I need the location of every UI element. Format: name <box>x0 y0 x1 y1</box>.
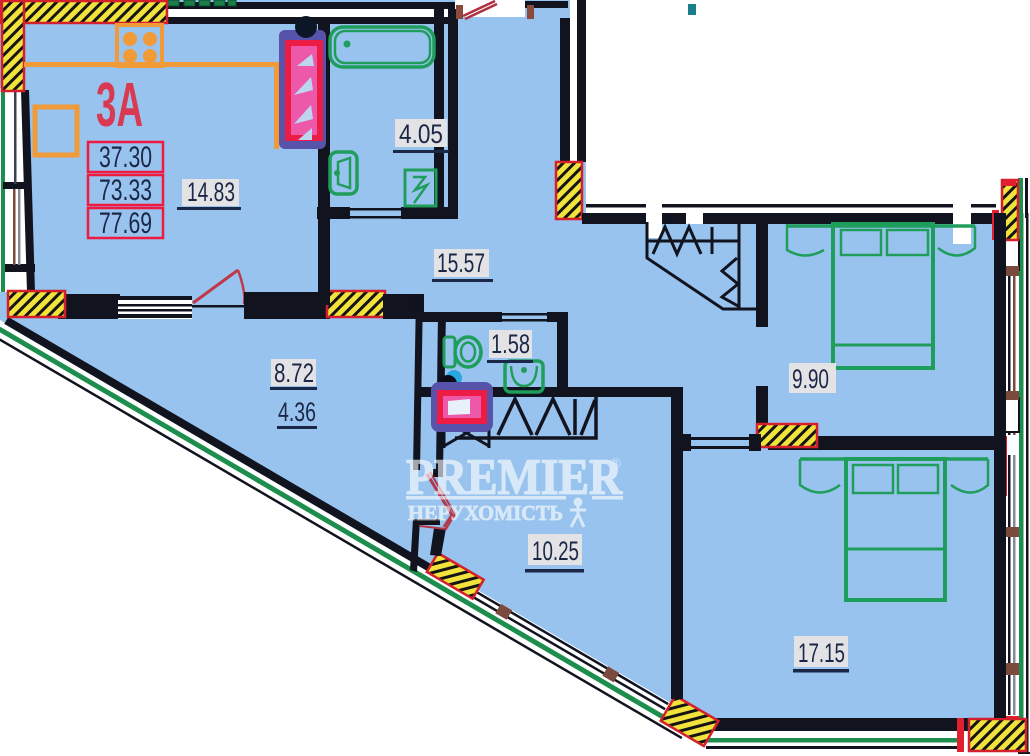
svg-text:73.33: 73.33 <box>99 174 152 207</box>
svg-text:37.30: 37.30 <box>99 141 152 174</box>
svg-text:®: ® <box>610 456 621 472</box>
svg-text:15.57: 15.57 <box>437 248 485 278</box>
svg-text:НЕРУХОМІСТЬ: НЕРУХОМІСТЬ <box>408 501 563 525</box>
svg-text:77.69: 77.69 <box>99 207 152 240</box>
svg-text:4.05: 4.05 <box>399 119 443 149</box>
svg-text:9.90: 9.90 <box>792 364 829 394</box>
svg-text:8.72: 8.72 <box>274 358 314 388</box>
svg-text:3А: 3А <box>96 71 143 140</box>
svg-text:4.36: 4.36 <box>278 397 316 427</box>
svg-text:14.83: 14.83 <box>187 177 235 207</box>
svg-text:1.58: 1.58 <box>491 329 530 359</box>
svg-text:17.15: 17.15 <box>798 638 845 668</box>
svg-text:10.25: 10.25 <box>532 536 579 566</box>
